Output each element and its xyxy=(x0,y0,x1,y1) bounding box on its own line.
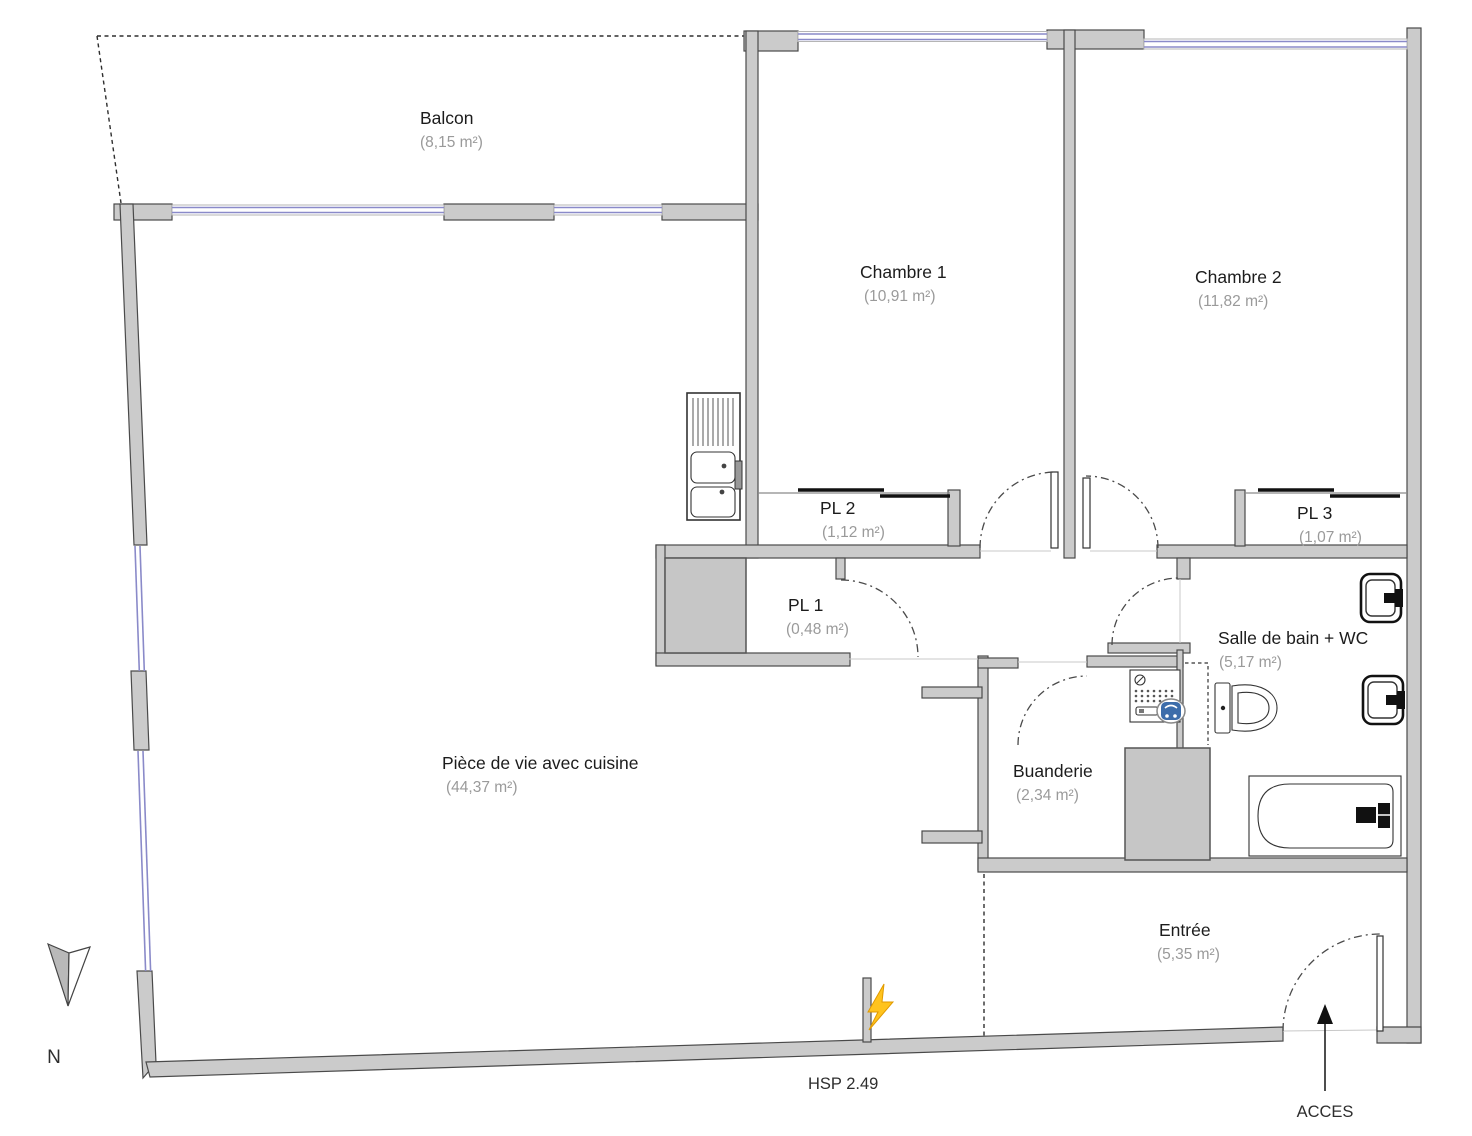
toilet-icon xyxy=(1215,683,1277,733)
access-label: ACCES xyxy=(1297,1103,1354,1121)
room-label-pl3: PL 3 (1,07 m²) xyxy=(1297,503,1362,546)
room-area: (10,91 m²) xyxy=(864,288,936,305)
room-label-entree: Entrée (5,35 m²) xyxy=(1157,920,1220,963)
wall-bathroom-door-stub xyxy=(1177,558,1190,579)
door-arc-buanderie xyxy=(1018,676,1087,745)
window-living-1-frame xyxy=(172,205,444,215)
room-name: Chambre 1 xyxy=(860,262,947,282)
wall-corridor-top-left xyxy=(656,545,980,558)
access-arrow-icon xyxy=(1317,1004,1333,1091)
wall-pl3-left xyxy=(1235,490,1245,546)
balcony-dashed-left xyxy=(97,36,121,203)
room-area: (0,48 m²) xyxy=(786,621,849,638)
room-label-balcon: Balcon (8,15 m²) xyxy=(420,108,483,151)
wall-pier-living-2 xyxy=(444,204,554,220)
wall-buanderie-top-right xyxy=(1087,656,1183,667)
room-label-pl2: PL 2 (1,12 m²) xyxy=(820,498,885,541)
interior-walls xyxy=(656,30,1407,872)
room-area: (2,34 m²) xyxy=(1016,787,1079,804)
shaft-pl1 xyxy=(665,558,746,653)
washbasin-icon xyxy=(1361,574,1403,622)
door-leaf-chambre2 xyxy=(1083,478,1090,548)
room-name: Salle de bain + WC xyxy=(1218,628,1368,648)
room-name: Balcon xyxy=(420,108,474,128)
windows xyxy=(135,32,1407,972)
door-leaf-entry xyxy=(1377,936,1383,1031)
north-label: N xyxy=(47,1047,61,1068)
room-label-chambre2: Chambre 2 (11,82 m²) xyxy=(1195,267,1282,310)
shaft-bathroom xyxy=(1125,748,1210,860)
washing-machine-icon xyxy=(1130,670,1185,723)
room-area: (11,82 m²) xyxy=(1198,293,1268,310)
wall-living-chambre1 xyxy=(746,31,758,558)
wall-bottom xyxy=(146,1027,1283,1077)
wall-buanderie-top-left xyxy=(978,658,1018,668)
room-name: Chambre 2 xyxy=(1195,267,1282,287)
bathroom-soffit-dashed xyxy=(1185,663,1208,745)
room-area: (5,17 m²) xyxy=(1219,654,1282,671)
wall-pl1-door-stub xyxy=(836,558,845,579)
room-label-buanderie: Buanderie (2,34 m²) xyxy=(1013,761,1093,804)
room-area: (44,37 m²) xyxy=(446,779,518,796)
room-label-salle-de-bain: Salle de bain + WC (5,17 m²) xyxy=(1218,628,1368,671)
room-label-piece-de-vie: Pièce de vie avec cuisine (44,37 m²) xyxy=(442,753,639,796)
door-leaf-chambre1 xyxy=(1051,472,1058,548)
door-arc-pl1 xyxy=(841,580,918,657)
wall-pl1-left xyxy=(656,545,665,665)
room-area: (1,07 m²) xyxy=(1299,529,1362,546)
window-living-2-frame xyxy=(554,205,662,215)
wall-stub-living-1 xyxy=(922,687,982,698)
bathtub-icon xyxy=(1249,776,1401,856)
room-label-chambre1: Chambre 1 (10,91 m²) xyxy=(860,262,947,305)
room-name: Pièce de vie avec cuisine xyxy=(442,753,639,773)
door-arc-chambre1 xyxy=(980,472,1056,548)
wall-chambre1-chambre2 xyxy=(1064,30,1075,558)
room-name: PL 2 xyxy=(820,498,855,518)
window-left-1 xyxy=(135,546,144,671)
wall-right xyxy=(1407,28,1421,1043)
wall-pl2-right xyxy=(948,490,960,546)
wall-pl1-bottom xyxy=(656,653,850,666)
door-arc-bathroom xyxy=(1112,578,1179,645)
room-label-pl1: PL 1 (0,48 m²) xyxy=(786,595,849,638)
floor-plan: Balcon (8,15 m²) Chambre 1 (10,91 m²) Ch… xyxy=(0,0,1472,1136)
ceiling-height-label: HSP 2.49 xyxy=(808,1075,878,1093)
room-area: (5,35 m²) xyxy=(1157,946,1220,963)
wall-left-upper xyxy=(120,204,147,545)
door-arc-entry xyxy=(1283,934,1380,1031)
door-arc-chambre2 xyxy=(1086,476,1158,548)
washbasin-icon-2 xyxy=(1363,676,1405,724)
room-name: PL 3 xyxy=(1297,503,1332,523)
room-name: Entrée xyxy=(1159,920,1211,940)
room-area: (1,12 m²) xyxy=(822,524,885,541)
room-name: PL 1 xyxy=(788,595,823,615)
wall-stub-living-2 xyxy=(922,831,982,843)
wall-corridor-top-right xyxy=(1157,545,1407,558)
north-arrow-icon xyxy=(48,944,90,1006)
room-area: (8,15 m²) xyxy=(420,134,483,151)
kitchen-sink-icon xyxy=(687,393,742,520)
room-name: Buanderie xyxy=(1013,761,1093,781)
wall-pier-living-3 xyxy=(662,204,758,220)
electric-supply-icon xyxy=(868,984,893,1030)
window-left-2 xyxy=(138,751,151,971)
wall-top-between-chambres xyxy=(1047,30,1144,49)
wall-left-pier xyxy=(131,671,149,750)
